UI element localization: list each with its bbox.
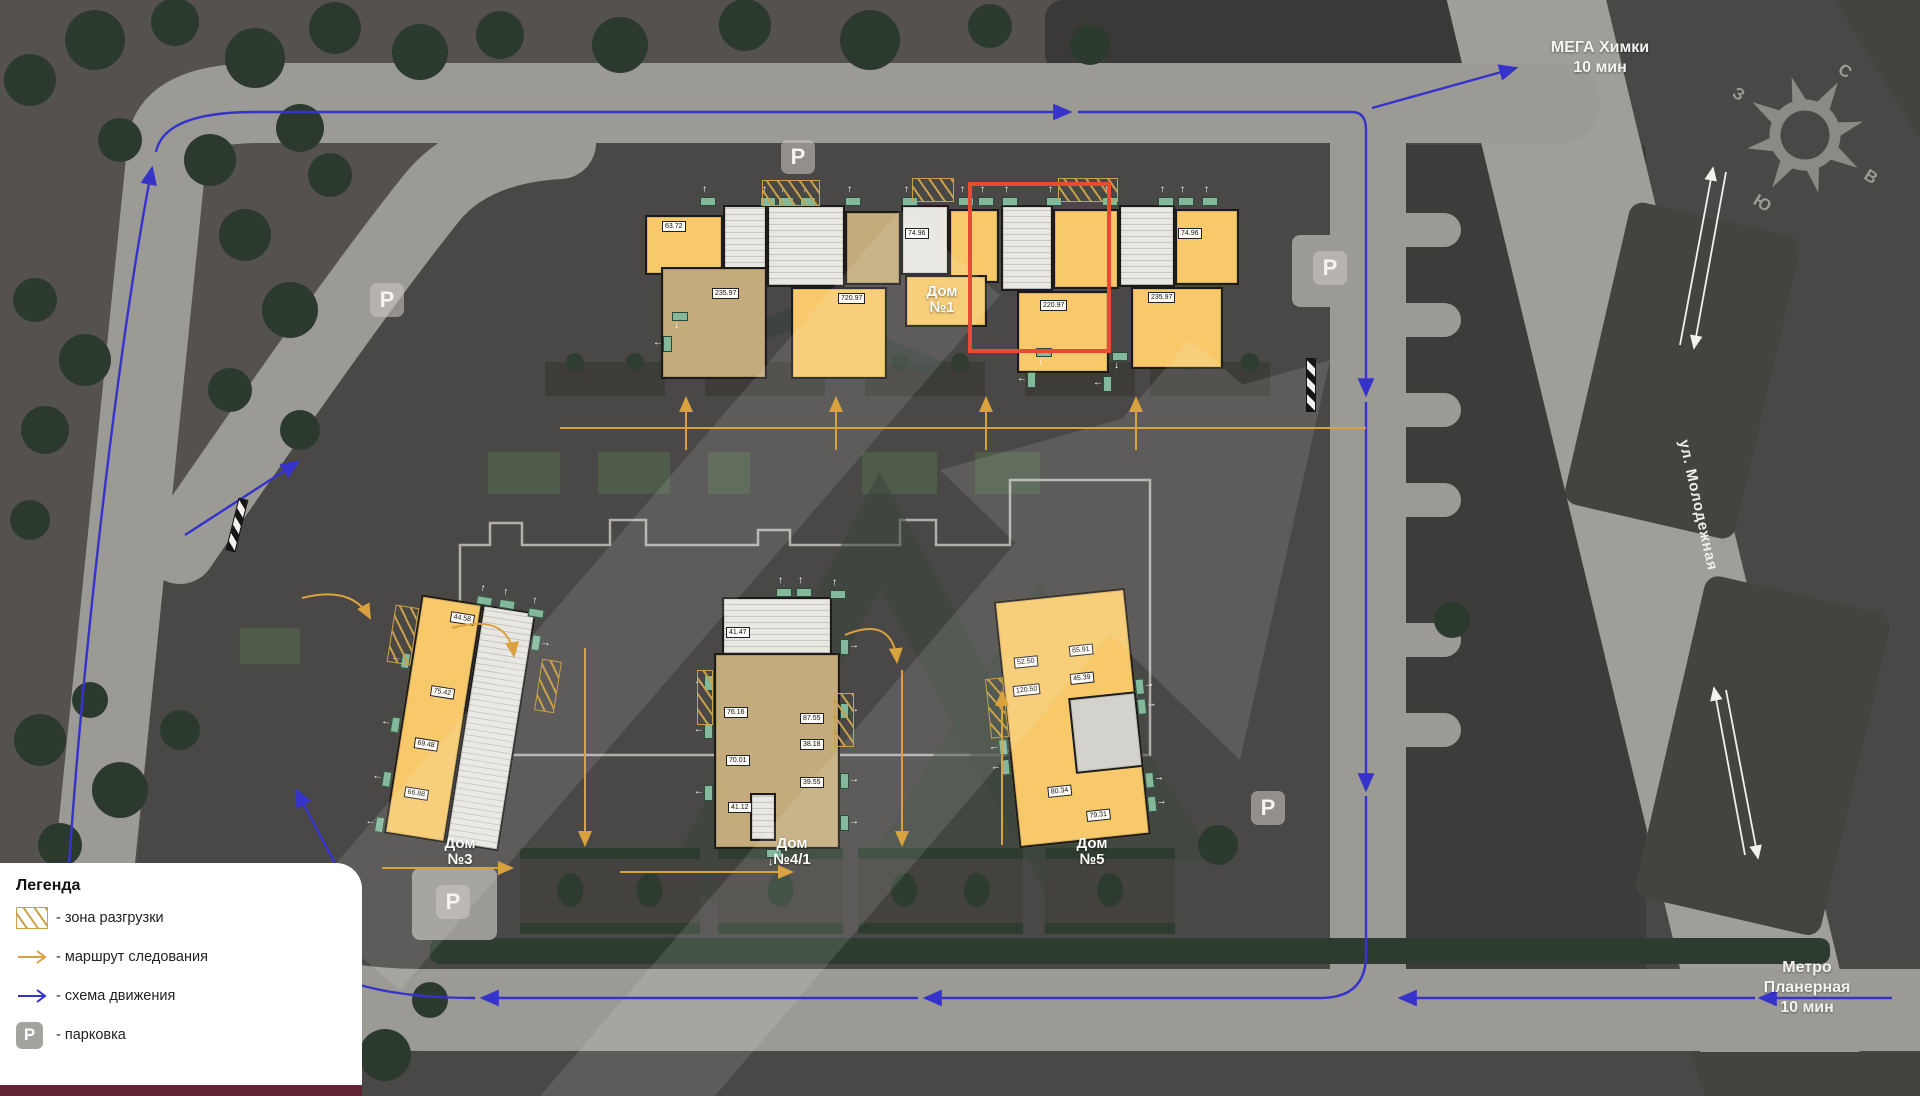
entrance-arrow-icon: ← [1103,376,1112,392]
area-label: 235.97 [712,288,739,299]
legend-item-traffic-scheme: - схема движения [16,983,362,1009]
entrance-arrow-icon: ← [998,739,1009,756]
parking-icon: P [16,1022,43,1049]
area-label: 41.12 [728,802,752,813]
poi-metro-planernaya: МетроПланерная10 мин [1727,958,1887,1018]
legend-item-route: - маршрут следования [16,944,362,970]
entrance-arrow-icon: ↑ [700,197,716,206]
entrance-arrow-icon: → [840,639,849,655]
building-label-dom1: Дом№1 [902,284,982,316]
entrance-arrow-icon: ↑ [776,588,792,597]
entrance-arrow-icon: → [1137,698,1148,715]
unload-zone [762,180,820,206]
parking-icon: P [436,885,470,919]
entrance-arrow-icon: ↓ [1112,352,1128,361]
area-label: 70.01 [726,755,750,766]
entrance-arrow-icon: → [840,815,849,831]
compass-north-label: С [1835,60,1855,83]
building-label-dom4-1: Дом№4/1 [752,836,832,868]
entrance-arrow-icon: ↓ [672,312,688,321]
parking-icon: P [370,283,404,317]
area-label: 39.55 [800,777,824,788]
area-label: 76.16 [724,707,748,718]
parking-icon: P [1313,251,1347,285]
compass-icon: С В Ю З [1715,45,1895,225]
entrance-arrow-icon: ↑ [796,588,812,597]
area-label: 74.96 [1178,228,1202,239]
area-label: 720.97 [838,293,865,304]
poi-mega-khimki: МЕГА Химки10 мин [1490,38,1710,78]
unload-zone [912,178,954,202]
orange-arrow-icon [16,949,50,965]
entrance-arrow-icon: ↑ [1202,197,1218,206]
entrance-arrow-icon: → [1135,678,1146,695]
area-label: 63.72 [662,221,686,232]
parking-icon: P [1251,791,1285,825]
legend-item-unload-zone: - зона разгрузки [16,905,362,931]
striped-bollard [1306,358,1316,412]
site-plan: 44.5875.4269.4866.88↑↑↑←←←←→ 41.4776.168… [0,0,1920,1096]
entrance-arrow-icon: ← [704,723,713,739]
entrance-arrow-icon: → [1147,796,1158,813]
entrance-arrow-icon: ← [1027,372,1036,388]
entrance-arrow-icon: ← [704,785,713,801]
building-label-dom5: Дом№5 [1052,836,1132,868]
entrance-arrow-icon: ← [663,336,672,352]
legend-title: Легенда [16,877,362,895]
area-label: 41.47 [726,627,750,638]
blue-arrow-icon [16,988,50,1004]
area-label: 87.55 [800,713,824,724]
entrance-arrow-icon: ↑ [1178,197,1194,206]
entrance-arrow-icon: → [1144,772,1155,789]
unload-zone-icon [16,907,48,929]
building-label-dom3: Дом№3 [420,836,500,868]
area-label: 38.18 [800,739,824,750]
area-label: 74.96 [905,228,929,239]
entrance-arrow-icon: ↑ [845,197,861,206]
building-dom5[interactable]: 52.5065.9145.39120.5080.3479.31→→→→←← [993,584,1151,848]
unload-zone [697,670,713,725]
entrance-arrow-icon: ↑ [1158,197,1174,206]
selected-section-highlight[interactable] [968,182,1111,353]
compass-south-label: Ю [1750,191,1775,216]
legend-item-parking: P - парковка [16,1022,362,1048]
entrance-arrow-icon: → [840,773,849,789]
area-label: 235.97 [1148,292,1175,303]
legend-panel: Легенда - зона разгрузки - маршрут следо… [0,863,362,1096]
unload-zone [834,693,854,747]
building-dom4-1[interactable]: 41.4776.1687.5538.1870.0139.5541.12↑↑↑→→… [714,597,840,849]
parking-icon: P [781,140,815,174]
entrance-arrow-icon: ← [1000,759,1011,776]
compass-east-label: В [1861,165,1881,188]
legend-accent-bar [0,1085,362,1096]
entrance-arrow-icon: ↑ [830,590,846,599]
compass-west-label: З [1729,83,1748,105]
